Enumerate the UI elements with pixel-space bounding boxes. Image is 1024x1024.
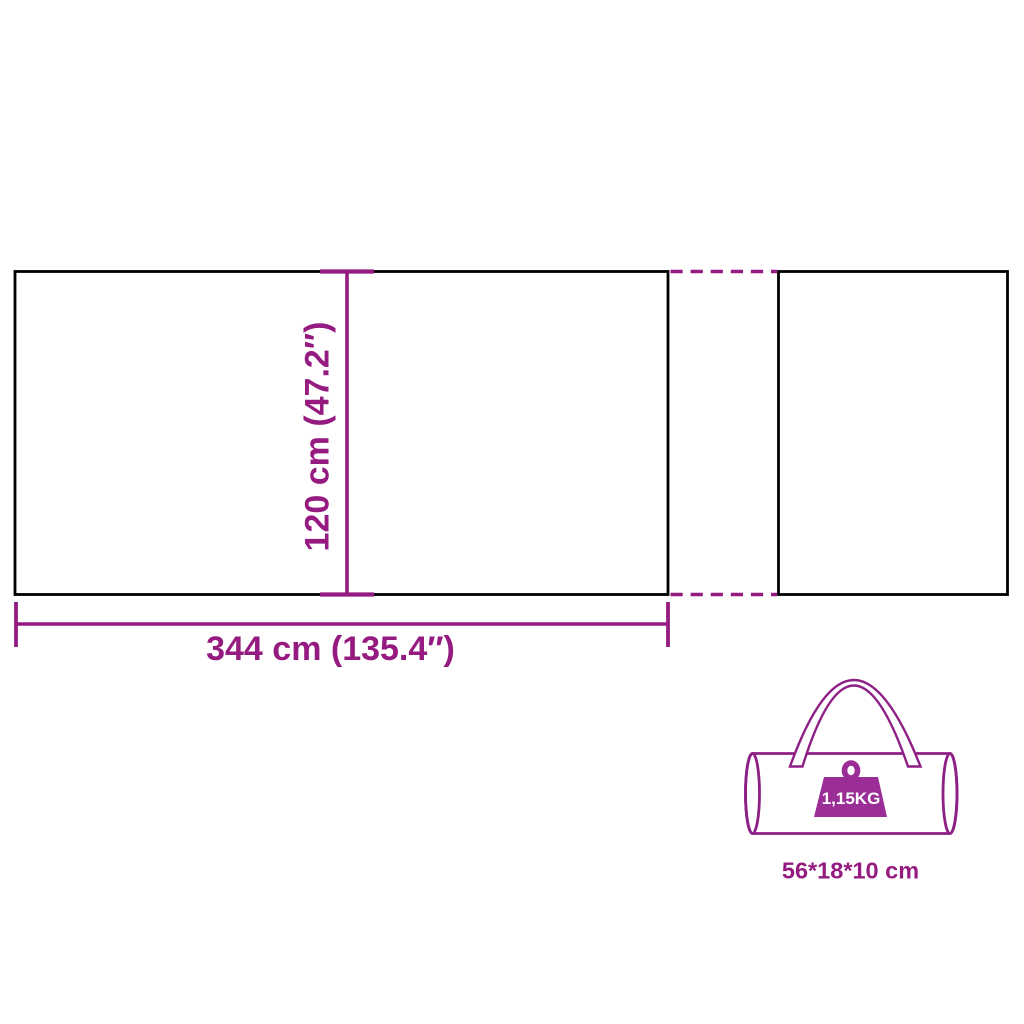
svg-text:120 cm (47.2″): 120 cm (47.2″) <box>299 322 337 552</box>
svg-text:1,15KG: 1,15KG <box>822 789 881 808</box>
svg-text:344 cm (135.4″): 344 cm (135.4″) <box>206 630 455 668</box>
svg-text:56*18*10 cm: 56*18*10 cm <box>782 858 919 884</box>
